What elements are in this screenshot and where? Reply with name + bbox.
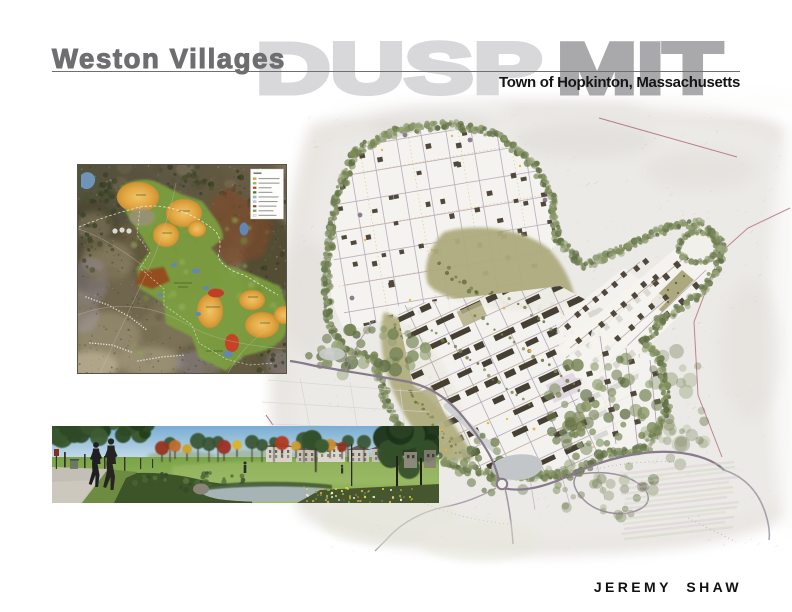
svg-text:DUSP: DUSP — [256, 30, 542, 109]
svg-text:MIT: MIT — [557, 30, 722, 109]
